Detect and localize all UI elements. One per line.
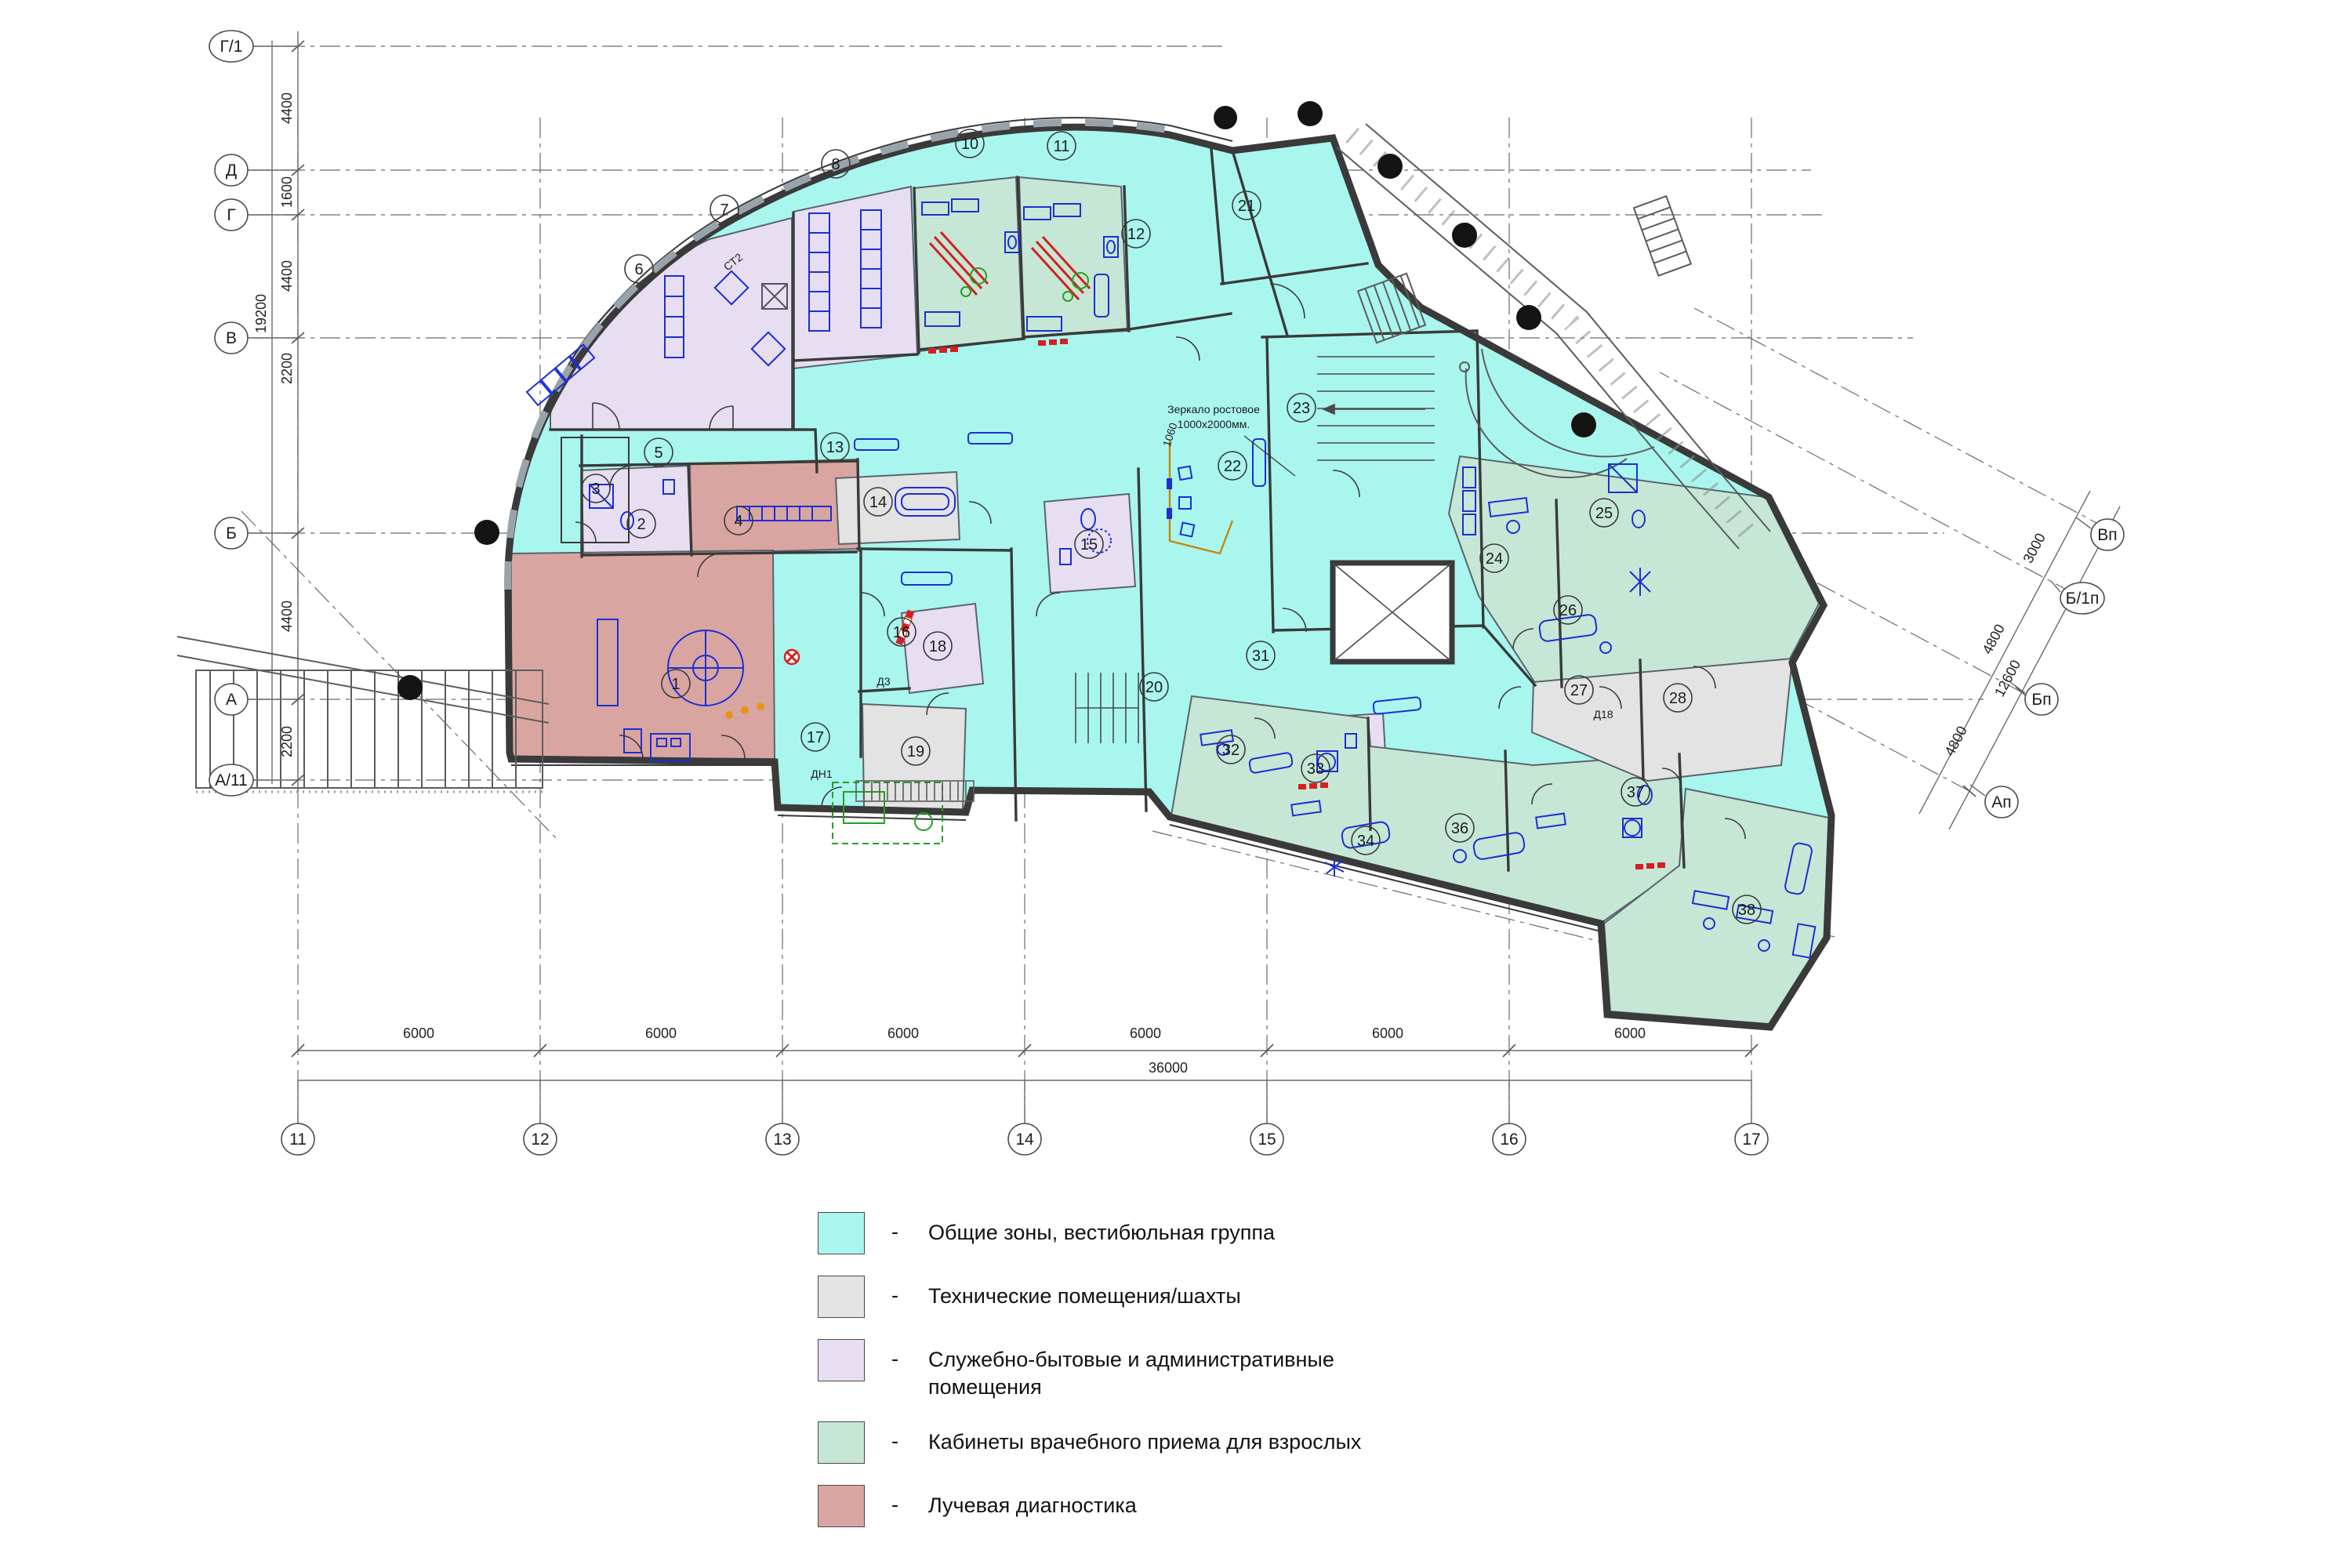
zone-room1 — [511, 550, 775, 759]
legend-row-common: -Общие зоны, вестибюльная группа — [818, 1212, 1586, 1254]
svg-text:15: 15 — [1258, 1131, 1276, 1149]
svg-text:Б/1п: Б/1п — [2066, 590, 2100, 608]
dim-left-2200: 2200 — [279, 353, 295, 384]
zone-room14 — [836, 472, 960, 544]
axis-left-Б: Б — [215, 517, 298, 549]
room-number-8: 8 — [831, 156, 840, 173]
svg-text:17: 17 — [1742, 1131, 1760, 1149]
svg-text:Д: Д — [226, 162, 237, 180]
axis-bottom-15: 15 — [1250, 1080, 1283, 1155]
room-number-14: 14 — [869, 494, 887, 511]
svg-text:А/11: А/11 — [215, 771, 248, 789]
dim-bottom-6000: 6000 — [1130, 1025, 1161, 1041]
room-number-21: 21 — [1238, 198, 1255, 215]
legend-label-doctor: Кабинеты врачебного приема для взрослых — [928, 1428, 1367, 1456]
room-number-18: 18 — [929, 638, 946, 655]
floor-plan-page: 1234567810111213141516171819202122232425… — [0, 0, 2352, 1568]
dim-left-19200: 19200 — [253, 294, 269, 333]
room-number-26: 26 — [1559, 602, 1577, 619]
dim-bottom-6000: 6000 — [1372, 1025, 1403, 1041]
room-number-23: 23 — [1293, 400, 1310, 417]
legend-label-common: Общие зоны, вестибюльная группа — [928, 1219, 1367, 1247]
svg-text:Г/1: Г/1 — [220, 38, 243, 56]
svg-text:14: 14 — [1015, 1131, 1034, 1149]
legend-separator: - — [891, 1429, 898, 1454]
dim-bottom-6000: 6000 — [403, 1025, 434, 1041]
zone-room10 — [914, 177, 1022, 351]
legend-separator: - — [891, 1493, 898, 1517]
room-number-12: 12 — [1127, 226, 1145, 243]
room-number-6: 6 — [634, 261, 643, 278]
svg-text:Бп: Бп — [2031, 691, 2051, 709]
dim-bottom-6000: 6000 — [1614, 1025, 1646, 1041]
room-number-5: 5 — [654, 445, 662, 462]
room-number-16: 16 — [893, 624, 910, 641]
axis-bottom-11: 11 — [281, 1080, 314, 1155]
room-number-37: 37 — [1627, 784, 1644, 801]
dim-left-4400: 4400 — [279, 93, 295, 124]
room-number-2: 2 — [637, 516, 645, 533]
dim-bottom-36000: 36000 — [1149, 1060, 1188, 1076]
legend-label-radiology: Лучевая диагностика — [928, 1492, 1367, 1519]
svg-text:12: 12 — [531, 1131, 549, 1149]
svg-text:А: А — [226, 691, 237, 709]
room-number-13: 13 — [826, 439, 844, 456]
dim-left-4400: 4400 — [279, 260, 295, 292]
axis-bottom-16: 16 — [1493, 1080, 1526, 1155]
dim-left-1600: 1600 — [279, 176, 295, 208]
room-number-34: 34 — [1357, 833, 1374, 850]
legend-label-service: Служебно-бытовые и административные поме… — [928, 1346, 1367, 1400]
dim-right-4800: 4800 — [1941, 724, 1969, 759]
room-number-25: 25 — [1595, 505, 1613, 522]
room-number-11: 11 — [1054, 138, 1070, 155]
svg-text:Вп: Вп — [2097, 526, 2117, 544]
svg-text:Б: Б — [226, 524, 237, 543]
room-number-17: 17 — [807, 729, 824, 746]
annotation-Д18: Д18 — [1593, 708, 1613, 720]
legend-row-service: -Служебно-бытовые и административные пом… — [818, 1339, 1586, 1400]
dim-left-4400: 4400 — [279, 601, 295, 632]
dim-bottom-6000: 6000 — [645, 1025, 677, 1041]
annotation-1000х2000мм.: 1000х2000мм. — [1178, 418, 1250, 430]
annotation-Зеркало ростовое: Зеркало ростовое — [1167, 403, 1260, 416]
svg-text:16: 16 — [1500, 1131, 1518, 1149]
svg-text:Ап: Ап — [1991, 793, 2011, 811]
legend-swatch-radiology — [818, 1485, 865, 1527]
dim-right-3000: 3000 — [2020, 531, 2048, 566]
axis-bottom-14: 14 — [1008, 1080, 1041, 1155]
legend-row-doctor: -Кабинеты врачебного приема для взрослых — [818, 1421, 1586, 1464]
legend-label-technical: Технические помещения/шахты — [928, 1283, 1367, 1310]
dim-right-4800: 4800 — [1979, 622, 2007, 657]
room-number-24: 24 — [1486, 550, 1503, 568]
room-number-7: 7 — [720, 201, 728, 219]
room-number-1: 1 — [671, 676, 680, 693]
room-number-38: 38 — [1738, 902, 1755, 919]
zones — [508, 127, 1833, 1027]
svg-text:Г: Г — [227, 206, 235, 224]
legend-swatch-technical — [818, 1276, 865, 1318]
axis-bottom-13: 13 — [766, 1080, 799, 1155]
legend-separator: - — [891, 1283, 898, 1308]
elevator-shaft — [1333, 563, 1452, 662]
room-number-32: 32 — [1222, 742, 1240, 759]
room-number-20: 20 — [1145, 679, 1163, 696]
room-number-15: 15 — [1080, 536, 1098, 554]
axis-right-Ап: Ап — [1970, 785, 2018, 818]
svg-text:13: 13 — [773, 1131, 791, 1149]
svg-text:В: В — [226, 329, 237, 347]
legend-separator: - — [891, 1347, 898, 1371]
axis-right-Бп: Бп — [2010, 682, 2058, 715]
legend-swatch-common — [818, 1212, 865, 1254]
room-number-19: 19 — [907, 743, 924, 760]
room-number-36: 36 — [1451, 820, 1468, 837]
room-number-33: 33 — [1307, 760, 1324, 778]
dim-bottom-6000: 6000 — [887, 1025, 919, 1041]
legend-separator: - — [891, 1220, 898, 1244]
room-number-27: 27 — [1570, 682, 1588, 699]
zone-rooms-6-7 — [550, 218, 792, 430]
axis-bottom-12: 12 — [524, 1080, 557, 1155]
legend-row-radiology: -Лучевая диагностика — [818, 1485, 1586, 1527]
room-number-3: 3 — [591, 481, 600, 498]
legend-swatch-service — [818, 1339, 865, 1381]
room-number-10: 10 — [961, 136, 978, 153]
axis-bottom-17: 17 — [1735, 1080, 1768, 1155]
legend-row-technical: -Технические помещения/шахты — [818, 1276, 1586, 1318]
legend-swatch-doctor — [818, 1421, 865, 1464]
room-number-28: 28 — [1669, 690, 1686, 707]
axis-right-Вп: Вп — [2076, 517, 2124, 550]
dim-left-2200: 2200 — [279, 726, 295, 757]
annotation-ДН1: ДН1 — [811, 768, 833, 780]
room-number-31: 31 — [1252, 648, 1269, 665]
room-number-22: 22 — [1224, 458, 1241, 475]
room-number-4: 4 — [734, 513, 742, 530]
annotation-Д3: Д3 — [877, 675, 890, 688]
legend: -Общие зоны, вестибюльная группа-Техниче… — [818, 1212, 1586, 1548]
svg-text:11: 11 — [289, 1131, 307, 1149]
axis-left-Г/1: Г/1 — [209, 31, 298, 62]
